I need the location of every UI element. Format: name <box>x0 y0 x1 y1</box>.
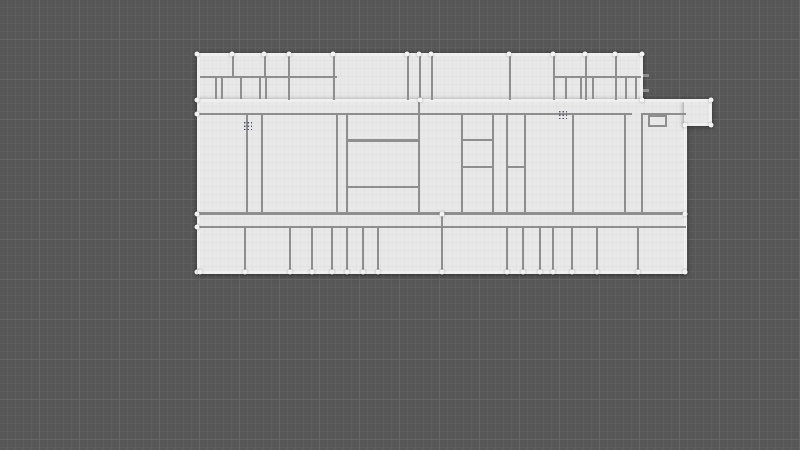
interior-wall-segment[interactable] <box>441 227 443 273</box>
vertex-handle[interactable] <box>195 112 200 117</box>
interior-wall-segment[interactable] <box>333 55 335 100</box>
drag-dots-handle-icon[interactable] <box>243 121 252 130</box>
interior-wall-segment[interactable] <box>580 77 582 99</box>
interior-wall-segment[interactable] <box>506 113 508 215</box>
vertex-handle[interactable] <box>243 270 248 275</box>
vertex-handle[interactable] <box>683 212 688 217</box>
interior-wall-segment[interactable] <box>240 77 242 99</box>
vertex-handle[interactable] <box>287 52 292 57</box>
vertex-handle[interactable] <box>376 270 381 275</box>
fixture-box[interactable] <box>648 115 667 127</box>
interior-wall-segment[interactable] <box>565 77 567 99</box>
vertex-handle[interactable] <box>198 270 203 275</box>
vertex-handle[interactable] <box>595 270 600 275</box>
floorplan[interactable] <box>0 0 800 450</box>
vertex-handle[interactable] <box>613 52 618 57</box>
vertex-handle[interactable] <box>538 270 543 275</box>
vertex-handle[interactable] <box>405 52 410 57</box>
interior-wall-segment[interactable] <box>407 55 409 100</box>
interior-wall-segment[interactable] <box>346 113 348 215</box>
interior-wall-segment[interactable] <box>539 227 541 273</box>
vertex-handle[interactable] <box>429 52 434 57</box>
vertex-handle[interactable] <box>636 270 641 275</box>
interior-wall-segment[interactable] <box>265 77 267 99</box>
interior-wall-segment[interactable] <box>615 55 617 100</box>
interior-wall-segment[interactable] <box>522 227 524 273</box>
interior-wall-segment[interactable] <box>311 227 313 273</box>
vertex-handle[interactable] <box>683 123 688 128</box>
vertex-handle[interactable] <box>195 98 200 103</box>
interior-wall-segment[interactable] <box>347 139 419 142</box>
vertex-handle[interactable] <box>551 52 556 57</box>
vertex-handle[interactable] <box>195 212 200 217</box>
vertex-handle[interactable] <box>345 270 350 275</box>
interior-wall-segment[interactable] <box>641 113 643 213</box>
vertex-handle[interactable] <box>195 225 200 230</box>
interior-wall-segment[interactable] <box>506 227 508 273</box>
interior-wall-segment[interactable] <box>264 55 266 77</box>
interior-wall-segment[interactable] <box>572 113 574 215</box>
vertex-handle[interactable] <box>583 52 588 57</box>
interior-wall-segment[interactable] <box>524 113 526 215</box>
outer-wall-segment[interactable] <box>684 123 687 274</box>
vertex-handle[interactable] <box>440 212 445 217</box>
vertex-handle[interactable] <box>507 52 512 57</box>
vertex-handle[interactable] <box>551 270 556 275</box>
interior-wall-segment[interactable] <box>215 77 217 99</box>
interior-wall-segment[interactable] <box>336 113 338 215</box>
interior-wall-segment[interactable] <box>289 227 291 273</box>
interior-wall-segment[interactable] <box>596 227 598 273</box>
drag-dots-handle-icon[interactable] <box>558 110 567 119</box>
interior-wall-segment[interactable] <box>377 227 379 273</box>
interior-wall-segment[interactable] <box>244 227 246 273</box>
interior-wall-segment[interactable] <box>592 77 594 99</box>
vertex-handle[interactable] <box>330 270 335 275</box>
interior-wall-segment[interactable] <box>637 227 639 273</box>
outer-wall-segment[interactable] <box>197 53 200 274</box>
interior-wall-segment[interactable] <box>461 113 463 215</box>
interior-wall-segment[interactable] <box>552 227 554 273</box>
vertex-handle[interactable] <box>683 270 688 275</box>
vertex-handle[interactable] <box>640 98 645 103</box>
interior-wall-segment[interactable] <box>221 77 223 99</box>
interior-wall-segment[interactable] <box>643 74 649 77</box>
outer-wall-segment[interactable] <box>197 99 712 102</box>
interior-wall-segment[interactable] <box>624 113 626 215</box>
interior-wall-segment[interactable] <box>259 77 261 99</box>
interior-wall-segment[interactable] <box>347 186 419 188</box>
vertex-handle[interactable] <box>195 52 200 57</box>
vertex-handle[interactable] <box>440 270 445 275</box>
vertex-handle[interactable] <box>310 270 315 275</box>
interior-wall-segment[interactable] <box>261 113 263 215</box>
vertex-handle[interactable] <box>230 52 235 57</box>
vertex-handle[interactable] <box>709 98 714 103</box>
vertex-handle[interactable] <box>331 52 336 57</box>
vertex-handle[interactable] <box>361 270 366 275</box>
interior-wall-segment[interactable] <box>431 55 433 100</box>
vertex-handle[interactable] <box>417 52 422 57</box>
interior-wall-segment[interactable] <box>419 55 421 100</box>
room-floor-slab[interactable] <box>684 99 712 126</box>
editor-canvas[interactable] <box>0 0 800 450</box>
vertex-handle[interactable] <box>288 270 293 275</box>
interior-wall-segment[interactable] <box>346 227 348 273</box>
vertex-handle[interactable] <box>521 270 526 275</box>
interior-wall-segment[interactable] <box>418 99 420 215</box>
interior-wall-segment[interactable] <box>585 55 587 100</box>
interior-wall-segment[interactable] <box>625 77 627 99</box>
interior-wall-segment[interactable] <box>643 89 649 92</box>
interior-wall-segment[interactable] <box>232 55 234 77</box>
vertex-handle[interactable] <box>640 52 645 57</box>
vertex-handle[interactable] <box>262 52 267 57</box>
vertex-handle[interactable] <box>570 270 575 275</box>
vertex-handle[interactable] <box>505 270 510 275</box>
vertex-handle[interactable] <box>709 123 714 128</box>
interior-wall-segment[interactable] <box>462 139 493 141</box>
interior-wall-segment[interactable] <box>288 55 290 100</box>
interior-wall-segment[interactable] <box>462 166 493 168</box>
interior-wall-segment[interactable] <box>553 55 555 100</box>
interior-wall-segment[interactable] <box>507 166 525 168</box>
interior-wall-segment[interactable] <box>571 227 573 273</box>
interior-wall-segment[interactable] <box>509 55 511 100</box>
interior-wall-segment[interactable] <box>492 113 494 215</box>
vertex-handle[interactable] <box>418 98 423 103</box>
interior-wall-segment[interactable] <box>331 227 333 273</box>
interior-wall-segment[interactable] <box>362 227 364 273</box>
interior-wall-segment[interactable] <box>635 77 637 99</box>
